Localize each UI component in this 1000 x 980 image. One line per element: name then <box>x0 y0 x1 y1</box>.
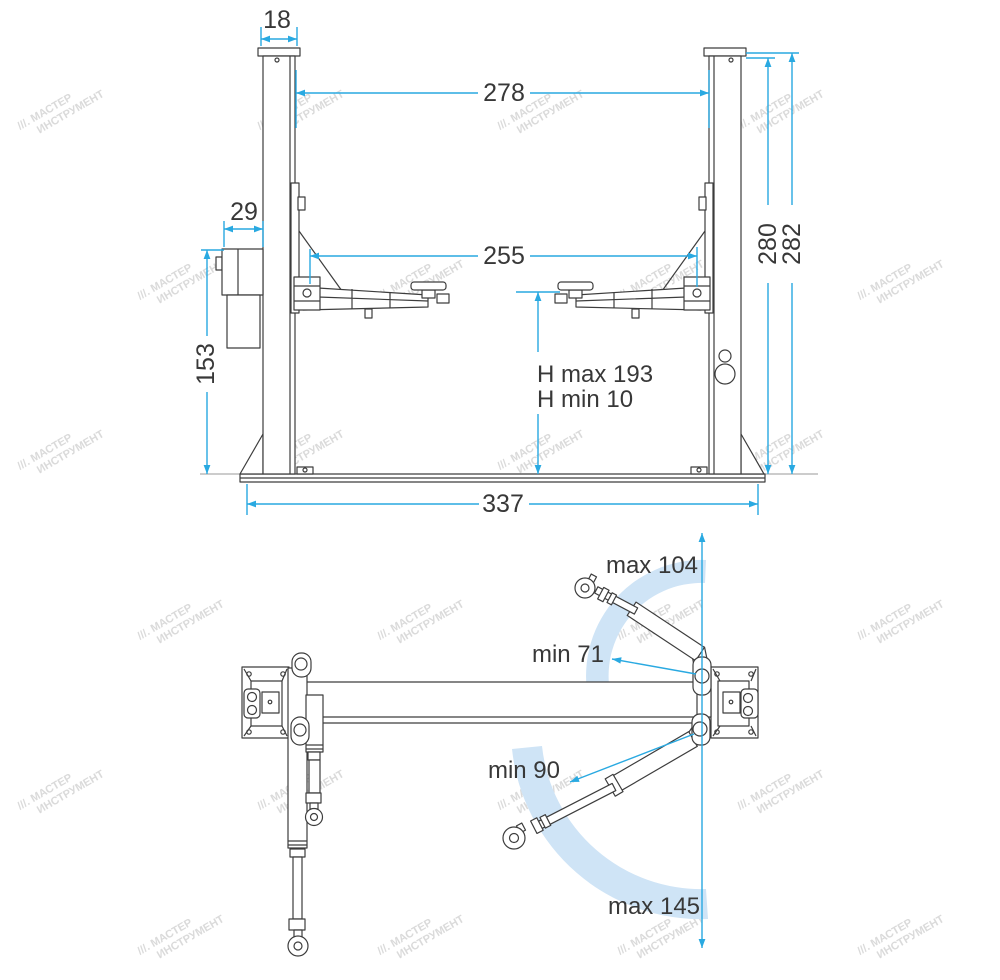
label-h-min: H min 10 <box>537 386 633 413</box>
right-column-cap <box>704 48 746 56</box>
front-arm-pad <box>575 578 595 598</box>
motor-knob <box>216 257 222 270</box>
left-arms <box>288 653 323 956</box>
left-pad-stem <box>422 290 435 298</box>
left-rear-arm-collar <box>289 919 305 930</box>
watermark-layer: ///. МАСТЕРИНСТРУМЕНТ ///. МАСТЕРИНСТРУМ… <box>16 77 947 969</box>
left-base-plate <box>242 667 289 738</box>
lock-release-big <box>715 364 735 384</box>
dim-motor-height: 153 <box>192 343 220 385</box>
rear-arm-pad <box>503 827 525 849</box>
left-arm-bracket <box>365 309 372 318</box>
dim-base-width: 337 <box>482 490 524 518</box>
dim-motor-width: 29 <box>230 198 258 226</box>
label-arm-front-min: min 71 <box>532 641 604 668</box>
top-view: max 104 min 71 min 90 max 145 <box>242 533 758 956</box>
right-lower-pivot <box>693 722 707 736</box>
left-rear-pad <box>288 936 308 956</box>
label-arm-rear-min: min 90 <box>488 757 560 784</box>
hydraulic-tank <box>227 295 260 348</box>
front-view: 18 278 29 153 255 H max 193 H min 10 280… <box>192 6 818 518</box>
dim-inner-span: 278 <box>483 79 525 107</box>
left-rear-arm-step <box>290 849 305 857</box>
left-carriage-tab <box>298 197 305 210</box>
left-pad-block <box>437 294 449 303</box>
left-column-cap <box>258 48 300 56</box>
dim-arm-span: 255 <box>483 242 525 270</box>
left-carriage-block <box>294 277 320 310</box>
right-lift-pad <box>558 282 593 290</box>
left-front-pad <box>306 809 323 826</box>
left-column-foot-gusset <box>240 434 263 474</box>
right-pad-block <box>555 294 567 303</box>
right-arm-bracket <box>632 309 639 318</box>
left-lift-pad <box>411 282 446 290</box>
right-carriage-arm <box>555 183 713 318</box>
leader-min71 <box>612 659 696 674</box>
dim-post-width: 18 <box>263 6 291 34</box>
left-front-arm-collar <box>306 793 321 803</box>
right-carriage-tab <box>699 197 706 210</box>
left-carriage-top <box>262 692 279 713</box>
left-rear-arm-rod <box>293 857 302 919</box>
motor-unit <box>216 249 263 348</box>
label-h-max: H max 193 <box>537 361 653 388</box>
lift-dimension-drawing: ///. МАСТЕРИНСТРУМЕНТ ///. МАСТЕРИНСТРУМ… <box>0 0 1000 980</box>
left-front-arm-rod <box>309 760 320 793</box>
left-lock-housing <box>244 689 260 718</box>
left-front-arm-step <box>308 752 320 760</box>
left-carriage-arm <box>291 183 449 318</box>
label-arm-rear-max: max 145 <box>608 893 700 920</box>
drawing-canvas: ///. МАСТЕРИНСТРУМЕНТ ///. МАСТЕРИНСТРУМ… <box>0 0 1000 980</box>
dim-total-height: 282 <box>778 223 806 265</box>
lock-release-small <box>719 350 731 362</box>
leader-min71-arrow <box>612 657 622 663</box>
motor-box <box>222 249 263 295</box>
label-arm-front-max: max 104 <box>606 552 698 579</box>
right-carriage-top <box>723 692 740 713</box>
right-pad-stem <box>569 290 582 298</box>
left-rear-arm-tube <box>288 668 307 848</box>
